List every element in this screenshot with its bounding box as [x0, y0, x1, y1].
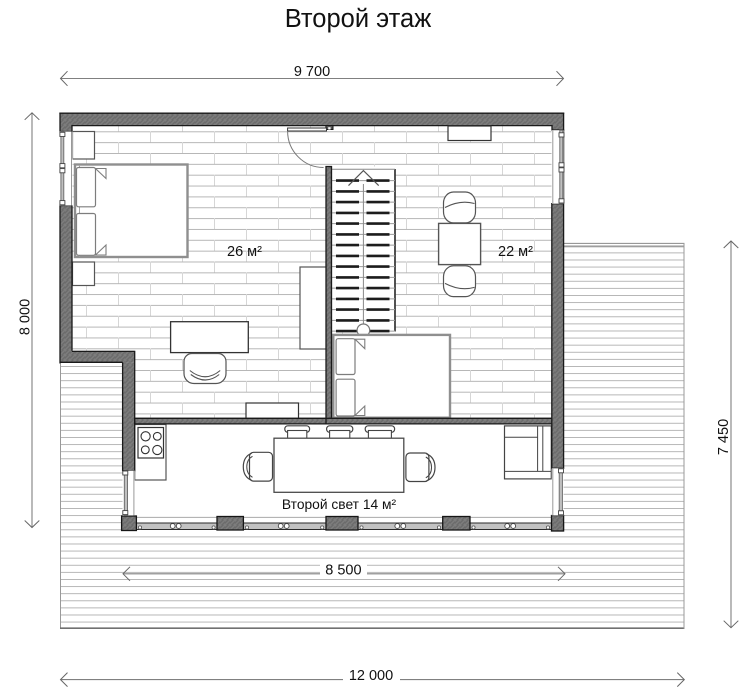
svg-text:8 500: 8 500	[325, 562, 361, 578]
svg-text:Второй этаж: Второй этаж	[285, 5, 432, 33]
svg-text:26 м²: 26 м²	[227, 244, 262, 260]
svg-text:8 000: 8 000	[18, 299, 34, 335]
svg-text:9 700: 9 700	[294, 64, 330, 80]
svg-text:12 000: 12 000	[349, 668, 393, 684]
svg-text:22 м²: 22 м²	[498, 244, 533, 260]
svg-text:7 450: 7 450	[716, 419, 732, 455]
svg-text:Второй свет 14 м²: Второй свет 14 м²	[282, 497, 397, 512]
